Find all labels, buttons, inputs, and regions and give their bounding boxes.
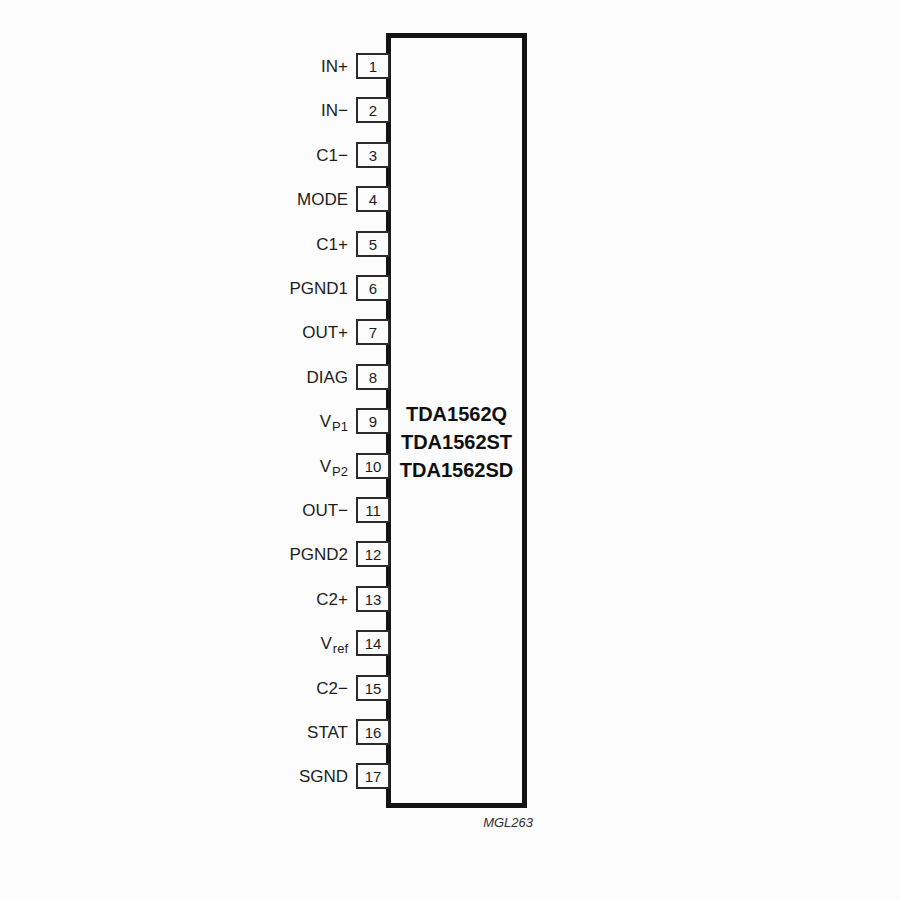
pin-number-box: 2 xyxy=(356,97,390,123)
pin-label: SGND xyxy=(299,768,348,785)
pinout-diagram: TDA1562Q TDA1562ST TDA1562SD IN+ 1 IN− 2… xyxy=(0,0,900,900)
pin-number-box: 8 xyxy=(356,364,390,390)
pin-number: 14 xyxy=(365,635,382,652)
pin-number: 8 xyxy=(369,369,377,386)
pin-label: OUT− xyxy=(302,502,348,519)
pin-row: VP1 9 xyxy=(0,407,390,435)
pin-number-box: 17 xyxy=(356,763,390,789)
part-number-3: TDA1562SD xyxy=(386,456,527,484)
pin-number: 10 xyxy=(365,458,382,475)
part-number-1: TDA1562Q xyxy=(386,400,527,428)
pin-label: VP1 xyxy=(320,413,348,430)
pin-row: PGND2 12 xyxy=(0,540,390,568)
pin-label-subscript: ref xyxy=(333,641,348,656)
pin-number-box: 9 xyxy=(356,408,390,434)
pin-number-box: 11 xyxy=(356,497,390,523)
pin-row: IN+ 1 xyxy=(0,52,390,80)
pin-label-subscript: P1 xyxy=(332,419,348,434)
pin-number-box: 7 xyxy=(356,319,390,345)
pin-label: IN− xyxy=(321,102,348,119)
pin-label: DIAG xyxy=(306,369,348,386)
pin-row: C1− 3 xyxy=(0,141,390,169)
pin-label: VP2 xyxy=(320,458,348,475)
pin-row: SGND 17 xyxy=(0,762,390,790)
pin-number: 1 xyxy=(369,58,377,75)
pin-label: OUT+ xyxy=(302,324,348,341)
pin-label: Vref xyxy=(320,635,348,652)
pin-number: 13 xyxy=(365,591,382,608)
pin-number: 6 xyxy=(369,280,377,297)
pin-number: 9 xyxy=(369,413,377,430)
pin-label: PGND2 xyxy=(289,546,348,563)
pin-label-subscript: P2 xyxy=(332,464,348,479)
pin-number: 16 xyxy=(365,724,382,741)
pin-row: VP2 10 xyxy=(0,452,390,480)
pin-label: PGND1 xyxy=(289,280,348,297)
pin-row: OUT+ 7 xyxy=(0,318,390,346)
pin-row: C1+ 5 xyxy=(0,230,390,258)
pin-row: C2+ 13 xyxy=(0,585,390,613)
pin-number-box: 3 xyxy=(356,142,390,168)
pin-label: STAT xyxy=(307,724,348,741)
pin-number-box: 15 xyxy=(356,675,390,701)
pin-row: DIAG 8 xyxy=(0,363,390,391)
pin-label: C2+ xyxy=(316,591,348,608)
pin-number-box: 10 xyxy=(356,453,390,479)
pin-number-box: 5 xyxy=(356,231,390,257)
pin-number: 11 xyxy=(365,502,381,519)
pin-number: 5 xyxy=(369,236,377,253)
pin-number-box: 6 xyxy=(356,275,390,301)
pin-number: 15 xyxy=(365,680,382,697)
pin-number-box: 14 xyxy=(356,630,390,656)
pin-number-box: 1 xyxy=(356,53,390,79)
pin-label: MODE xyxy=(297,191,348,208)
pin-label: C1+ xyxy=(316,236,348,253)
figure-code: MGL263 xyxy=(386,815,533,830)
pin-row: Vref 14 xyxy=(0,629,390,657)
pin-row: C2− 15 xyxy=(0,674,390,702)
pin-row: OUT− 11 xyxy=(0,496,390,524)
pin-number-box: 4 xyxy=(356,186,390,212)
pin-row: PGND1 6 xyxy=(0,274,390,302)
part-number-2: TDA1562ST xyxy=(386,428,527,456)
pin-number-box: 12 xyxy=(356,541,390,567)
pin-number: 2 xyxy=(369,102,377,119)
pin-number: 12 xyxy=(365,546,382,563)
pin-number-box: 13 xyxy=(356,586,390,612)
pin-label: IN+ xyxy=(321,58,348,75)
pin-label: C1− xyxy=(316,147,348,164)
pin-number: 7 xyxy=(369,324,377,341)
pin-row: IN− 2 xyxy=(0,96,390,124)
pin-label: C2− xyxy=(316,680,348,697)
pin-number: 17 xyxy=(365,768,382,785)
pin-row: STAT 16 xyxy=(0,718,390,746)
pin-number-box: 16 xyxy=(356,719,390,745)
pin-row: MODE 4 xyxy=(0,185,390,213)
pin-number: 4 xyxy=(369,191,377,208)
pin-number: 3 xyxy=(369,147,377,164)
ic-part-numbers: TDA1562Q TDA1562ST TDA1562SD xyxy=(386,400,527,484)
